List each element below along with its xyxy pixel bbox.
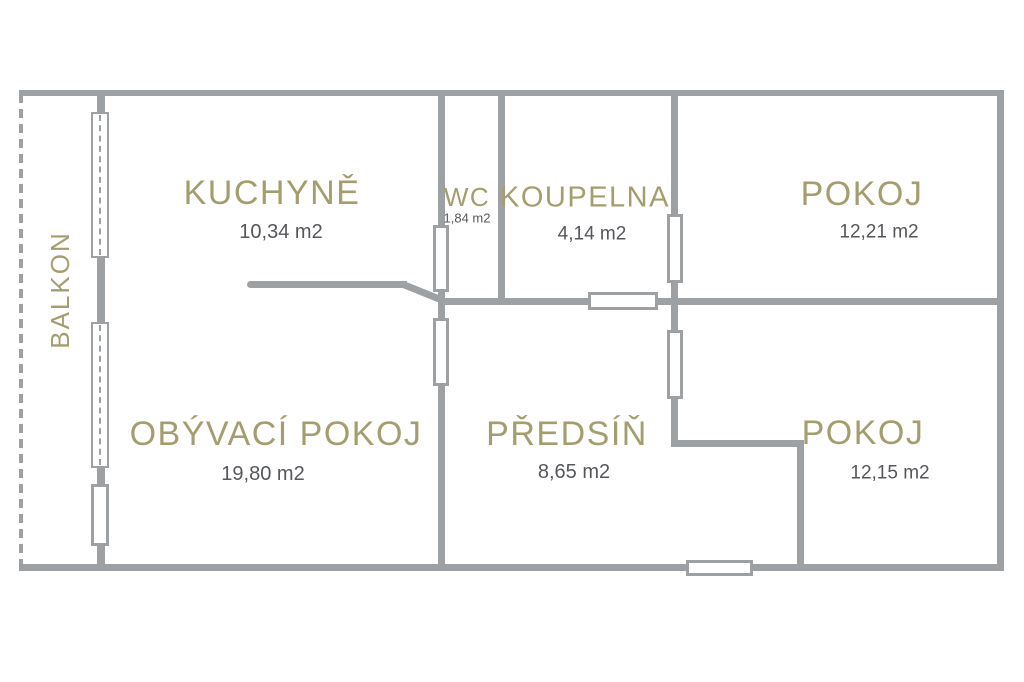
room-area-pokoj-top: 12,21 m2 (839, 223, 918, 242)
wall-facade-d (97, 544, 105, 564)
wall-facade-a (97, 96, 105, 113)
pokoj-bottom-door-icon (667, 330, 683, 399)
wall-right (997, 90, 1004, 571)
koupelna-door-icon (588, 292, 658, 310)
balcony-railing-icon (19, 94, 23, 564)
room-label-pokoj-bottom: POKOJ (802, 416, 925, 450)
room-area-obyvaci-pokoj: 19,80 m2 (221, 464, 304, 484)
room-label-koupelna: KOUPELNA (500, 184, 670, 213)
room-label-kuchyne: KUCHYNĚ (184, 176, 361, 210)
balcony-door-icon (91, 484, 109, 546)
room-label-pokoj-top: POKOJ (801, 177, 924, 211)
room-label-obyvaci-pokoj: OBÝVACÍ POKOJ (130, 417, 423, 451)
wall-facade-c (97, 466, 105, 485)
room-area-pokoj-bottom: 12,15 m2 (850, 464, 929, 483)
wall-hall-pokoj-vertical (797, 440, 804, 571)
entrance-door-icon (686, 560, 753, 576)
room-area-wc: 1,84 m2 (444, 212, 491, 225)
room-area-predsin: 8,65 m2 (538, 462, 610, 482)
wall-hall-pokoj-horizontal (671, 440, 804, 447)
kitchen-counter (247, 281, 407, 288)
wall-bottom (19, 564, 1004, 571)
pokoj-top-door-icon (667, 214, 683, 283)
room-area-kuchyne: 10,34 m2 (239, 222, 322, 242)
wc-door-icon (433, 225, 449, 292)
wall-hall-pokoj-a (671, 305, 678, 332)
wall-living-hall-b (438, 383, 445, 564)
room-area-koupelna: 4,14 m2 (558, 225, 627, 244)
wall-hall-pokoj-b (671, 396, 678, 444)
floor-plan: BALKON KUCHYNĚ 10,34 m2 WC 1,84 m2 KOUPE… (0, 0, 1024, 682)
wall-top (19, 90, 1004, 96)
wall-center-horizontal (438, 298, 1004, 305)
window-icon (91, 322, 109, 468)
room-label-predsin: PŘEDSÍŇ (486, 417, 648, 451)
wall-facade-b (97, 256, 105, 323)
balcony-label: BALKON (47, 231, 73, 349)
window-icon (91, 112, 109, 258)
living-room-door-icon (433, 318, 449, 386)
wall-koupelna-pokoj-a (671, 96, 678, 216)
room-label-wc: WC (444, 184, 490, 210)
